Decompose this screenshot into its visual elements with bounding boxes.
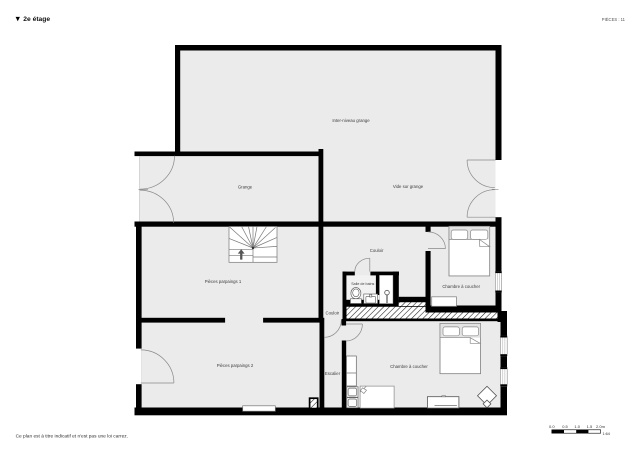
- svg-text:Pièces parpaings 1: Pièces parpaings 1: [205, 279, 242, 284]
- svg-text:Pièces parpaings 2: Pièces parpaings 2: [217, 363, 254, 368]
- svg-text:Escalier: Escalier: [325, 371, 341, 376]
- svg-text:Vide sur grange: Vide sur grange: [393, 184, 424, 189]
- svg-text:1.5: 1.5: [587, 424, 593, 429]
- svg-text:Chambre à coucher: Chambre à coucher: [442, 284, 480, 289]
- svg-text:Couloir: Couloir: [325, 311, 339, 316]
- svg-text:2.0m: 2.0m: [596, 424, 606, 429]
- svg-text:0.0: 0.0: [549, 424, 555, 429]
- svg-text:0.5: 0.5: [562, 424, 568, 429]
- svg-text:Chambre à coucher: Chambre à coucher: [390, 364, 428, 369]
- svg-text:1.0: 1.0: [574, 424, 580, 429]
- svg-text:Ce plan est à titre indicatif: Ce plan est à titre indicatif et n'est p…: [16, 434, 128, 440]
- svg-text:Grange: Grange: [238, 185, 253, 190]
- svg-text:Inter-niveau grange: Inter-niveau grange: [332, 118, 370, 123]
- svg-text:Salle de bains: Salle de bains: [351, 282, 374, 286]
- svg-text:2e étage: 2e étage: [23, 16, 50, 23]
- svg-text:PIÈCES : 11: PIÈCES : 11: [602, 17, 626, 22]
- svg-text:Couloir: Couloir: [370, 248, 384, 253]
- svg-text:1:64: 1:64: [603, 432, 610, 436]
